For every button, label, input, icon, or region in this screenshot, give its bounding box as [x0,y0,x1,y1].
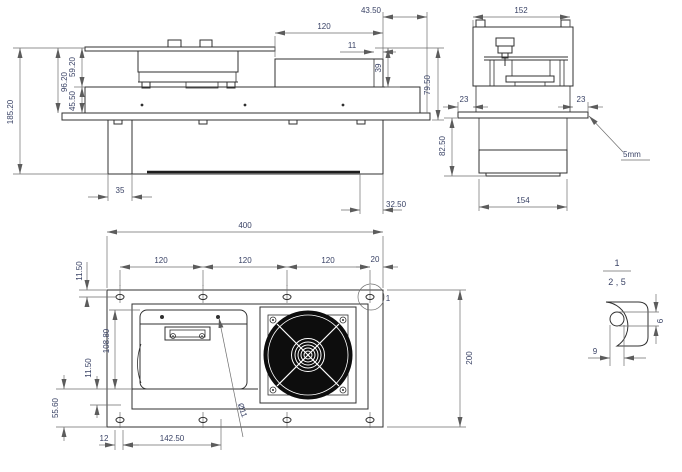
lower-duct [479,150,567,173]
dim-plan-height-total: 200 [465,351,474,365]
end-view-geometry [458,20,588,176]
mount-tab [200,40,212,47]
detail-balloon [358,284,384,310]
technical-drawing-canvas: 43.50 120 11 39 79.50 185.20 96 [0,0,682,472]
mounting-plate [458,112,588,118]
dim-plan-margin-bottom: 11.50 [84,358,93,378]
dim-plan-pitch-1: 120 [154,256,168,265]
end-view: 152 23 23 82.50 154 5mm [438,6,650,211]
side-view-dimensions: 43.50 120 11 39 79.50 185.20 96 [6,6,444,214]
dim-side-width-tab: 11 [348,41,357,50]
dim-side-foot-left: 35 [116,186,125,195]
upper-heatsink-fins [476,86,570,112]
upper-housing [85,87,420,113]
junction-box [275,59,383,87]
peltier-stack [512,60,550,76]
terminal-block [496,38,514,46]
dim-detail-slot-height: 6 [656,318,665,323]
side-view-geometry [62,40,430,174]
dim-side-width-module: 120 [317,22,331,31]
dim-side-height-right: 79.50 [423,74,432,95]
dim-end-overhang-right: 23 [577,95,586,104]
detail-hole [610,312,624,326]
plate-thickness-note: 5mm [623,150,641,159]
lower-heatsink-fins [479,118,567,150]
dim-detail-slot-width: 9 [593,347,598,356]
plan-view: 400 120 120 120 20 11.50 108.80 [51,221,474,450]
dim-plan-panel-height: 108.80 [102,328,111,353]
dim-side-height-total: 185.20 [6,99,15,124]
dim-plan-hole-dia: Ø11 [236,402,249,419]
fin-array [139,72,236,82]
heatsink-module [138,51,238,72]
dim-plan-margin-top: 11.50 [75,261,84,281]
lower-housing [108,120,383,174]
drawing-svg: 43.50 120 11 39 79.50 185.20 96 [0,0,682,472]
plan-view-dimensions: 400 120 120 120 20 11.50 108.80 [51,221,474,450]
detail-balloon-label: 1 [386,294,391,303]
dim-plan-strip-height: 55.60 [51,397,60,418]
end-view-dimensions: 152 23 23 82.50 154 5mm [438,6,650,211]
dim-plan-edge-offset: 20 [371,255,380,264]
dim-side-foot-right: 32.50 [386,200,407,209]
dim-side-height-mid: 45.50 [68,90,77,111]
dim-end-width-bottom: 154 [516,196,530,205]
side-view: 43.50 120 11 39 79.50 185.20 96 [6,6,444,214]
dim-plan-pitch-2: 120 [238,256,252,265]
dim-plan-pitch-3: 120 [321,256,335,265]
mount-tab [168,40,181,47]
dim-end-height-lower: 82.50 [438,135,447,156]
dim-side-height-module: 59.20 [68,56,77,77]
detail-number: 1 [614,258,619,268]
dim-end-width-top: 152 [514,6,528,15]
dim-side-offset-top: 43.50 [361,6,382,15]
dim-plan-offset-left: 12 [100,434,109,443]
dim-plan-width-total: 400 [238,221,252,230]
mounting-flange [62,113,430,120]
dim-end-overhang-left: 23 [460,95,469,104]
dim-side-height-box: 39 [374,63,383,72]
detail-view: 1 2 , 5 6 9 [588,258,665,366]
dim-plan-slot-span: 142.50 [160,434,185,443]
detail-scale: 2 , 5 [608,277,626,287]
